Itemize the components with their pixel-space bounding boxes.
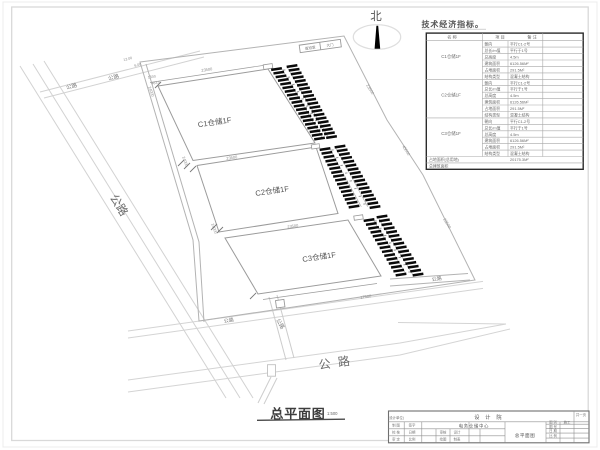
svg-text:日 期: 日 期 (549, 428, 557, 433)
svg-text:校 核: 校 核 (392, 430, 400, 435)
svg-text:制表: 制表 (454, 437, 461, 442)
svg-text:平行于1号: 平行于1号 (510, 125, 528, 130)
svg-text:总建筑面积: 总建筑面积 (429, 163, 449, 168)
svg-text:公路: 公路 (431, 275, 442, 283)
svg-text:291.5M²: 291.5M² (510, 145, 525, 150)
svg-text:6126.56M²: 6126.56M² (510, 61, 529, 66)
svg-text:混凝土结构: 混凝土结构 (510, 74, 530, 79)
svg-text:6126.56M²: 6126.56M² (510, 100, 529, 105)
svg-text:结构类型: 结构类型 (485, 113, 501, 118)
svg-text:日期: 日期 (409, 430, 416, 435)
svg-text:绘图: 绘图 (440, 437, 447, 442)
svg-text:图 别: 图 别 (549, 419, 557, 424)
svg-text:北: 北 (370, 10, 382, 23)
svg-text:审核: 审核 (440, 430, 447, 435)
svg-text:平行C1-2号: 平行C1-2号 (510, 119, 530, 124)
svg-text:结构类型: 结构类型 (485, 74, 501, 79)
svg-text:平行于1号: 平行于1号 (510, 48, 528, 53)
svg-text:总平面图: 总平面图 (515, 432, 535, 439)
svg-text:备 注: 备 注 (527, 34, 537, 41)
svg-text:设计: 设计 (454, 430, 461, 435)
svg-text:6126.56M²: 6126.56M² (510, 138, 529, 143)
svg-text:20175.3M²: 20175.3M² (510, 157, 529, 162)
svg-text:制 图: 制 图 (392, 423, 400, 428)
svg-text:4.5m: 4.5m (510, 132, 519, 137)
svg-text:电务仓储中心: 电务仓储中心 (459, 423, 490, 430)
svg-text:平行C1-2号: 平行C1-2号 (510, 80, 530, 85)
svg-text:大门: 大门 (326, 42, 334, 48)
svg-text:建筑面积: 建筑面积 (485, 100, 501, 105)
svg-text:C2仓储1F: C2仓储1F (441, 92, 461, 99)
svg-text:占地面积: 占地面积 (485, 145, 501, 150)
svg-text:比例: 比例 (409, 437, 416, 442)
svg-text:图 号: 图 号 (549, 424, 557, 429)
svg-text:总高度: 总高度 (485, 93, 497, 98)
svg-text:总长/m值: 总长/m值 (485, 48, 501, 53)
svg-text:(设计单位): (设计单位) (388, 415, 404, 420)
svg-text:设 计 院: 设 计 院 (474, 413, 503, 421)
svg-text:签字: 签字 (409, 423, 416, 428)
svg-text:施工: 施工 (564, 419, 571, 424)
svg-text:朝向: 朝向 (485, 119, 493, 124)
svg-text:朝向: 朝向 (485, 42, 493, 47)
svg-text:总长/m值: 总长/m值 (485, 125, 501, 130)
svg-text:审 定: 审 定 (392, 437, 400, 442)
svg-text:291.5M²: 291.5M² (510, 67, 525, 72)
svg-text:总长/m值: 总长/m值 (485, 87, 501, 92)
svg-text:1:500: 1:500 (327, 411, 338, 416)
svg-text:C1仓储1F: C1仓储1F (441, 53, 461, 60)
svg-text:混凝土结构: 混凝土结构 (510, 113, 530, 118)
svg-text:混凝土结构: 混凝土结构 (510, 151, 530, 156)
svg-text:占地面积: 占地面积 (485, 67, 501, 72)
svg-text:占地面积(总用地): 占地面积(总用地) (429, 157, 460, 162)
svg-text:比 例: 比 例 (549, 433, 557, 438)
svg-text:结构类型: 结构类型 (485, 151, 501, 156)
svg-text:建筑面积: 建筑面积 (485, 61, 501, 66)
svg-text:4.5m: 4.5m (510, 93, 519, 98)
svg-text:占地面积: 占地面积 (485, 106, 501, 111)
svg-text:共一页: 共一页 (576, 412, 587, 417)
svg-text:名 称: 名 称 (447, 34, 457, 41)
svg-text:C3仓储1F: C3仓储1F (441, 130, 461, 137)
svg-text:平行于1号: 平行于1号 (510, 87, 528, 92)
svg-text:朝向: 朝向 (485, 80, 493, 85)
svg-text:公路: 公路 (223, 316, 234, 324)
svg-text:总高度: 总高度 (485, 132, 497, 137)
svg-text:平行C1-2号: 平行C1-2号 (510, 42, 530, 47)
svg-text:建筑面积: 建筑面积 (485, 138, 501, 143)
svg-text:技术经济指标。: 技术经济指标。 (422, 19, 484, 29)
svg-text:291.5M²: 291.5M² (510, 106, 525, 111)
svg-text:总高度: 总高度 (485, 55, 497, 60)
svg-text:4.5m: 4.5m (510, 55, 519, 60)
